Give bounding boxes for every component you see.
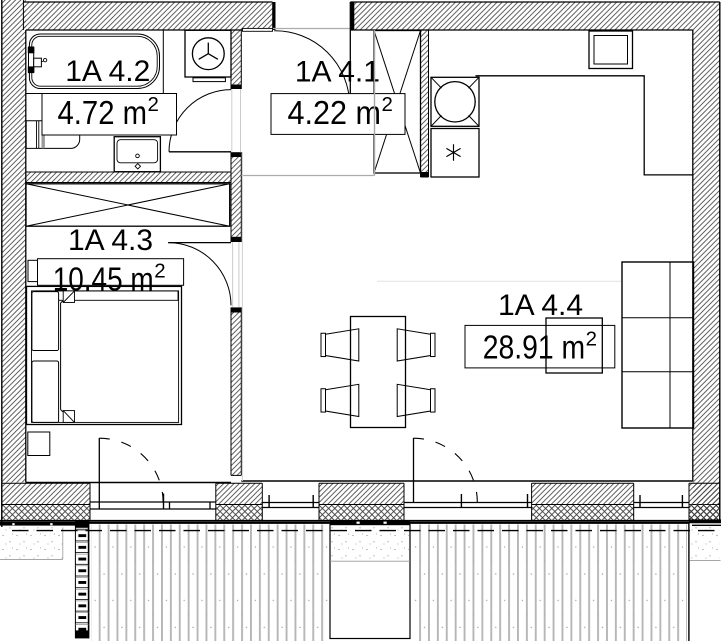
svg-text:2: 2: [586, 327, 597, 350]
svg-text:2: 2: [382, 93, 393, 116]
svg-text:1A 4.3: 1A 4.3: [68, 224, 153, 257]
svg-text:2: 2: [154, 259, 165, 282]
svg-text:4.72 m: 4.72 m: [58, 94, 148, 131]
svg-text:4.22 m: 4.22 m: [288, 94, 382, 131]
svg-text:1A 4.2: 1A 4.2: [65, 55, 150, 88]
svg-text:1A 4.4: 1A 4.4: [498, 289, 583, 322]
svg-text:2: 2: [148, 93, 159, 116]
svg-text:28.91 m: 28.91 m: [483, 328, 586, 365]
svg-text:10.45 m: 10.45 m: [53, 260, 154, 297]
svg-text:1A 4.1: 1A 4.1: [295, 56, 380, 89]
